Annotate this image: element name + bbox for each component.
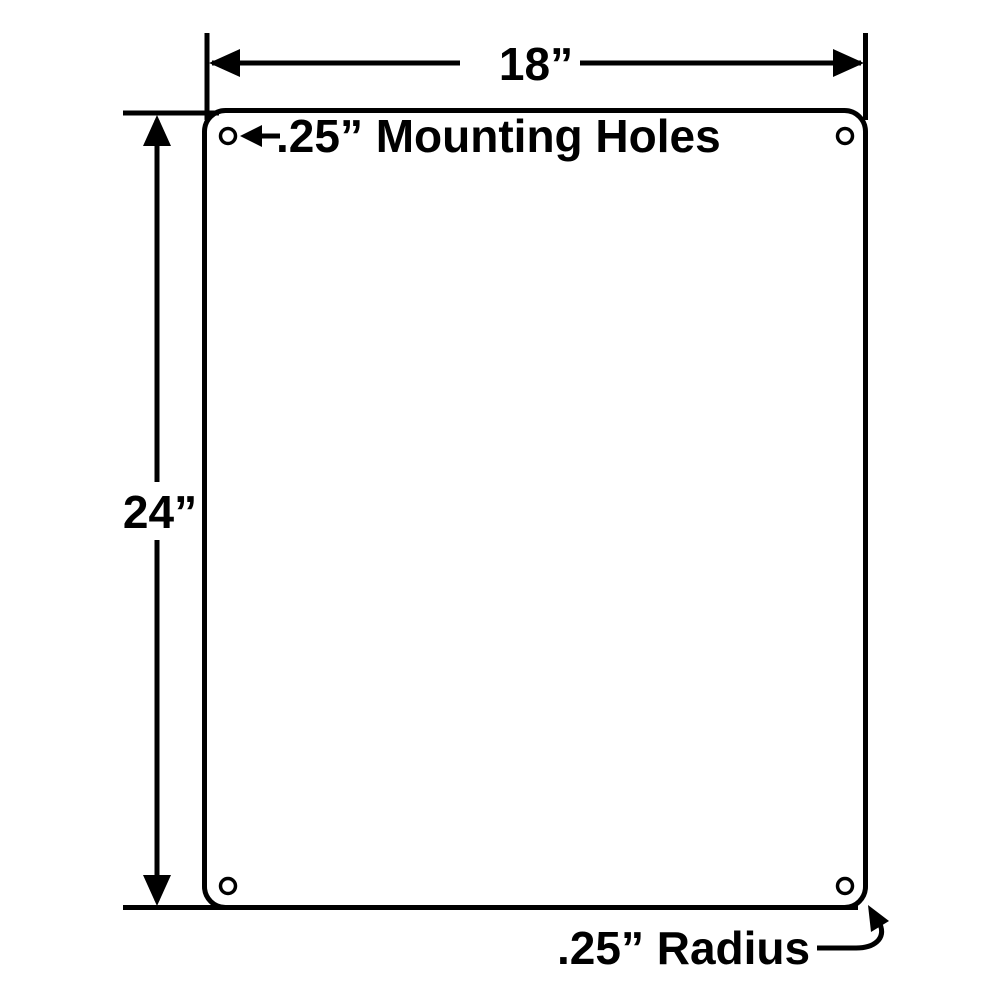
width-dimension-right-arrowhead-icon	[833, 49, 864, 77]
technical-drawing-canvas: 18” 24” .25” Mounting Holes .25” Radius	[0, 0, 1000, 1000]
mounting-holes-label: .25” Mounting Holes	[276, 110, 721, 162]
mounting-hole-top-left	[221, 129, 236, 144]
height-dimension-bottom-arrowhead-icon	[143, 875, 171, 906]
radius-callout-arrowhead-icon	[868, 905, 889, 932]
panel-outline	[205, 111, 866, 908]
height-dimension-label: 24”	[123, 486, 197, 538]
mounting-hole-bottom-right	[838, 879, 853, 894]
panel-dimension-diagram: 18” 24” .25” Mounting Holes .25” Radius	[0, 0, 1000, 1000]
width-dimension-left-arrowhead-icon	[209, 49, 240, 77]
radius-label: .25” Radius	[557, 922, 810, 974]
height-dimension-top-arrowhead-icon	[143, 115, 171, 146]
stroke-group	[123, 33, 882, 948]
width-dimension-label: 18”	[499, 38, 573, 90]
mounting-hole-top-right	[838, 129, 853, 144]
mounting-hole-bottom-left	[221, 879, 236, 894]
